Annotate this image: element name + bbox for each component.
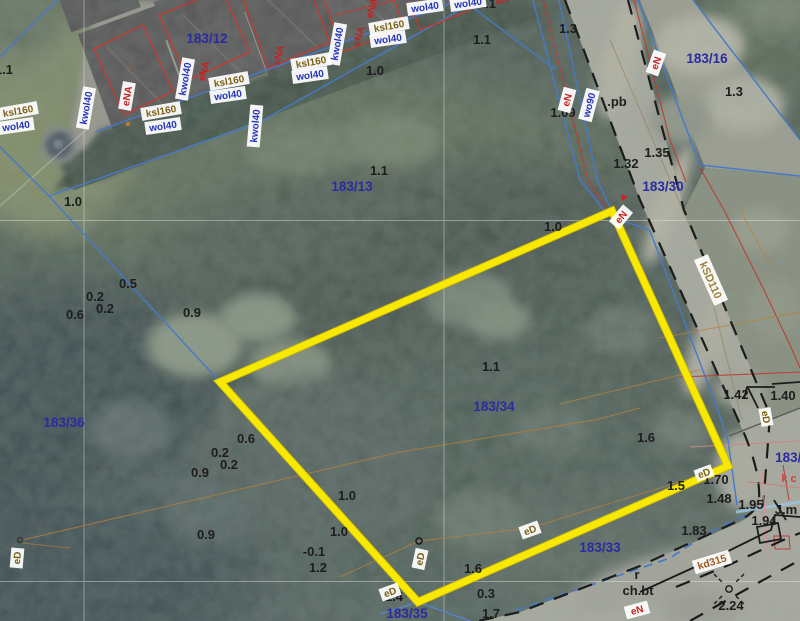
svg-text:1.35: 1.35: [644, 145, 669, 160]
svg-text:183/33: 183/33: [579, 540, 621, 555]
svg-text:1.6: 1.6: [464, 561, 482, 576]
svg-text:1.1: 1.1: [473, 32, 491, 47]
svg-text:183/34: 183/34: [473, 399, 515, 414]
svg-text:0.5: 0.5: [119, 276, 137, 291]
svg-text:1.32: 1.32: [613, 156, 638, 171]
svg-text:1.94: 1.94: [751, 513, 777, 528]
svg-text:183/35: 183/35: [386, 606, 428, 621]
svg-text:1.48: 1.48: [706, 491, 731, 506]
svg-text:0.2: 0.2: [220, 457, 238, 472]
svg-text:183/2: 183/2: [775, 450, 800, 465]
svg-text:0.9: 0.9: [197, 527, 215, 542]
svg-text:1.40: 1.40: [770, 388, 795, 403]
svg-text:1.1: 1.1: [482, 359, 500, 374]
svg-text:0.6: 0.6: [237, 431, 255, 446]
svg-text:1.1: 1.1: [370, 163, 388, 178]
svg-text:1.95: 1.95: [738, 497, 763, 512]
svg-text:1.42: 1.42: [723, 387, 748, 402]
svg-text:1.0: 1.0: [330, 524, 348, 539]
svg-text:J.m: J.m: [775, 502, 797, 517]
svg-text:1.1: 1.1: [0, 62, 13, 77]
svg-text:1.3: 1.3: [725, 84, 743, 99]
svg-text:2.24: 2.24: [718, 598, 744, 613]
svg-text:0.9: 0.9: [191, 465, 209, 480]
svg-text:1.3: 1.3: [559, 21, 577, 36]
svg-text:ch.bt: ch.bt: [622, 583, 654, 598]
svg-text:k c: k c: [781, 473, 796, 485]
svg-text:1.0: 1.0: [64, 194, 82, 209]
svg-text:i: i: [130, 64, 132, 75]
svg-text:1.0: 1.0: [366, 63, 384, 78]
svg-text:-0.1: -0.1: [303, 544, 325, 559]
svg-text:1.2: 1.2: [309, 560, 327, 575]
svg-text:.pb: .pb: [607, 94, 627, 109]
svg-text:1.83: 1.83: [681, 523, 706, 538]
svg-text:1.0: 1.0: [544, 219, 562, 234]
svg-text:1.5: 1.5: [667, 478, 685, 493]
svg-text:0.9: 0.9: [183, 305, 201, 320]
svg-text:1.0: 1.0: [338, 488, 356, 503]
svg-text:r: r: [634, 567, 639, 582]
svg-text:183/16: 183/16: [686, 51, 728, 66]
svg-text:1.7: 1.7: [482, 606, 500, 621]
svg-text:183/12: 183/12: [186, 31, 227, 46]
svg-text:eD: eD: [12, 551, 24, 565]
svg-text:0.2: 0.2: [96, 301, 114, 316]
svg-text:183/30: 183/30: [642, 179, 683, 194]
svg-text:eD: eD: [758, 410, 771, 425]
svg-text:183/13: 183/13: [331, 179, 373, 194]
svg-text:0.6: 0.6: [66, 307, 84, 322]
svg-text:1.6: 1.6: [637, 430, 655, 445]
svg-text:183/36: 183/36: [43, 415, 85, 430]
svg-text:0.3: 0.3: [477, 586, 495, 601]
